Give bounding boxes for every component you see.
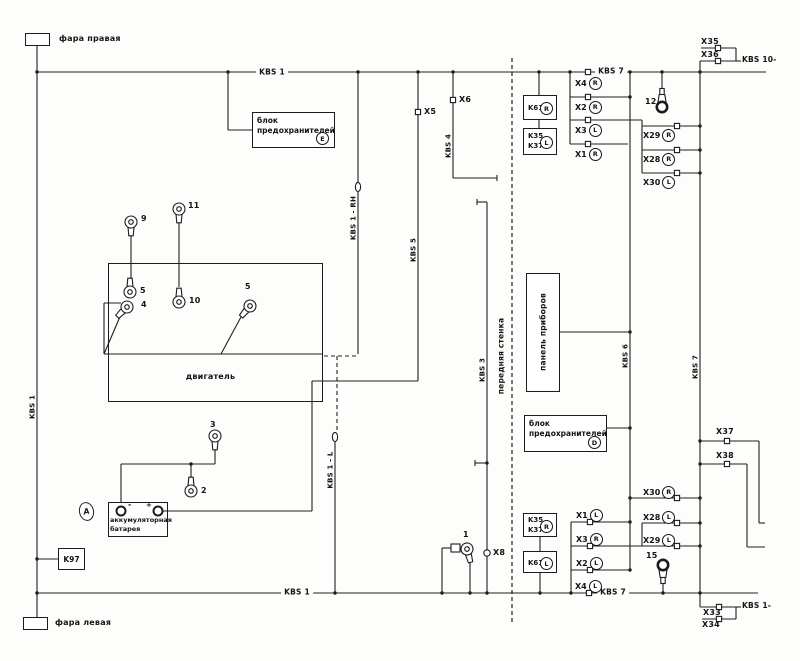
connector-x36-label: X36 — [701, 51, 719, 59]
terminal-9-label: 9 — [141, 215, 147, 223]
connector-x38-label: X38 — [716, 452, 734, 460]
engine-box — [108, 263, 323, 402]
terminal-5b-label: 5 — [245, 283, 251, 291]
connector-x33-label: X33 — [703, 609, 721, 617]
connector-x6-label: X6 — [459, 96, 471, 104]
fuse-block-top-label-1: блок — [257, 116, 278, 125]
headlight-left-box — [23, 617, 48, 630]
connector-x35-label: X35 — [701, 38, 719, 46]
terminal-10-label: 10 — [189, 297, 201, 305]
fuse-block-mid-label-1: блок — [529, 419, 550, 428]
device-12-symbol — [657, 89, 667, 113]
wire-label-kbs10: KBS 10- — [742, 56, 777, 64]
terminal-11-label: 11 — [188, 202, 200, 210]
terminal-3-label: 3 — [210, 421, 216, 429]
device-12-label: 12 — [645, 98, 657, 106]
relay-k3537-bottom-side: R — [540, 520, 553, 533]
fuse-block-top-box: блок предохранителей E — [252, 112, 335, 148]
relay-k3537-bottom-box: K35 K37 R — [523, 513, 557, 537]
front-wall-label: передняя стенка — [497, 318, 505, 394]
fuse-block-top-badge: E — [316, 132, 329, 145]
ring-terminal-11 — [173, 203, 185, 223]
wire-label-kbs1-bottom: KBS 1 — [281, 588, 313, 596]
wire-label-kbs4: KBS 4 — [446, 134, 453, 158]
relay-k61-top-box: K61 R — [523, 95, 557, 120]
connector-x4-bottom: X4L — [575, 580, 602, 593]
wire-label-kbs1-left: KBS 1 — [30, 395, 37, 419]
battery-label-1: аккумуляторная — [110, 517, 172, 524]
wire-label-kbs1-corner: KBS 1- — [742, 602, 771, 610]
connector-x3-top: X3L — [575, 124, 602, 137]
connector-x37-label: X37 — [716, 428, 734, 436]
connector-x30-top: X30L — [643, 176, 675, 189]
instrument-panel-label: панель приборов — [539, 293, 547, 371]
battery-plus-sign: + — [146, 502, 152, 509]
battery-minus-sign: - — [128, 501, 132, 509]
connector-x34-label: X34 — [702, 621, 720, 629]
wire-label-kbs5: KBS 5 — [411, 238, 418, 262]
terminal-5a-label: 5 — [140, 287, 146, 295]
x8-connector-circle — [484, 550, 490, 556]
connector-x2-top: X2R — [575, 101, 602, 114]
ring-terminal-2 — [185, 477, 197, 497]
device-15-symbol — [658, 560, 668, 584]
wire-label-kbs6: KBS 6 — [623, 344, 630, 368]
ring-terminal-9 — [125, 216, 137, 236]
wiring-diagram-page: фара правая фара левая K97 блок предохра… — [0, 0, 800, 661]
wire-label-kbs7-bottom: KBS 7 — [597, 588, 629, 596]
battery-label-2: батарея — [110, 526, 140, 533]
fuse-block-mid-badge: D — [588, 436, 601, 449]
device-15-label: 15 — [646, 552, 658, 560]
connector-x1-top: X1R — [575, 148, 602, 161]
connector-x5-label: X5 — [424, 108, 436, 116]
connector-x2-bottom: X2L — [576, 557, 603, 570]
headlight-left-label: фара левая — [55, 619, 111, 627]
connector-x28-top: X28R — [643, 153, 675, 166]
connector-x30-bottom: X30R — [643, 486, 675, 499]
connector-x29-top: X29R — [643, 129, 675, 142]
wire-label-kbs7-top: KBS 7 — [595, 67, 627, 75]
ring-terminal-3 — [209, 430, 221, 450]
relay-k3537-top-box: K35 K37 L — [523, 128, 557, 155]
engine-label: двигатель — [108, 373, 313, 381]
connector-x4-top: X4R — [575, 77, 602, 90]
wire-label-kbs7-right: KBS 7 — [693, 355, 700, 379]
terminal-2-label: 2 — [201, 487, 207, 495]
connector-x8-label: X8 — [493, 549, 505, 557]
terminal-4-label: 4 — [141, 301, 147, 309]
wire-label-kbs1-lh: KBS 1 - L — [328, 451, 335, 488]
connector-x28-bottom: X28L — [643, 511, 675, 524]
relay-k61-bottom-box: K61 L — [523, 551, 557, 573]
relay-k97-label: K97 — [63, 555, 79, 564]
clamp-terminal-block — [451, 544, 460, 552]
relay-k97-box: K97 — [58, 548, 85, 570]
relay-k61-bottom-side: L — [540, 557, 553, 570]
connector-x29-bottom: X29L — [643, 534, 675, 547]
wire-label-kbs3: KBS 3 — [480, 358, 487, 382]
relay-k3537-top-side: L — [540, 136, 553, 149]
terminal-1-label: 1 — [463, 531, 469, 539]
wire-label-kbs1-rh: KBS 1 - RH — [351, 196, 358, 240]
connector-x1-bottom: X1L — [576, 509, 603, 522]
headlight-right-label: фара правая — [59, 35, 121, 43]
connector-x3-bottom: X3R — [576, 533, 603, 546]
headlight-right-box — [25, 33, 50, 46]
relay-k61-top-side: R — [540, 102, 553, 115]
ring-terminal-1 — [460, 542, 477, 564]
fuse-block-mid-box: блок предохранителей D — [524, 415, 607, 452]
cluster-wires — [442, 48, 765, 619]
wire-label-kbs1-top: KBS 1 — [256, 68, 288, 76]
